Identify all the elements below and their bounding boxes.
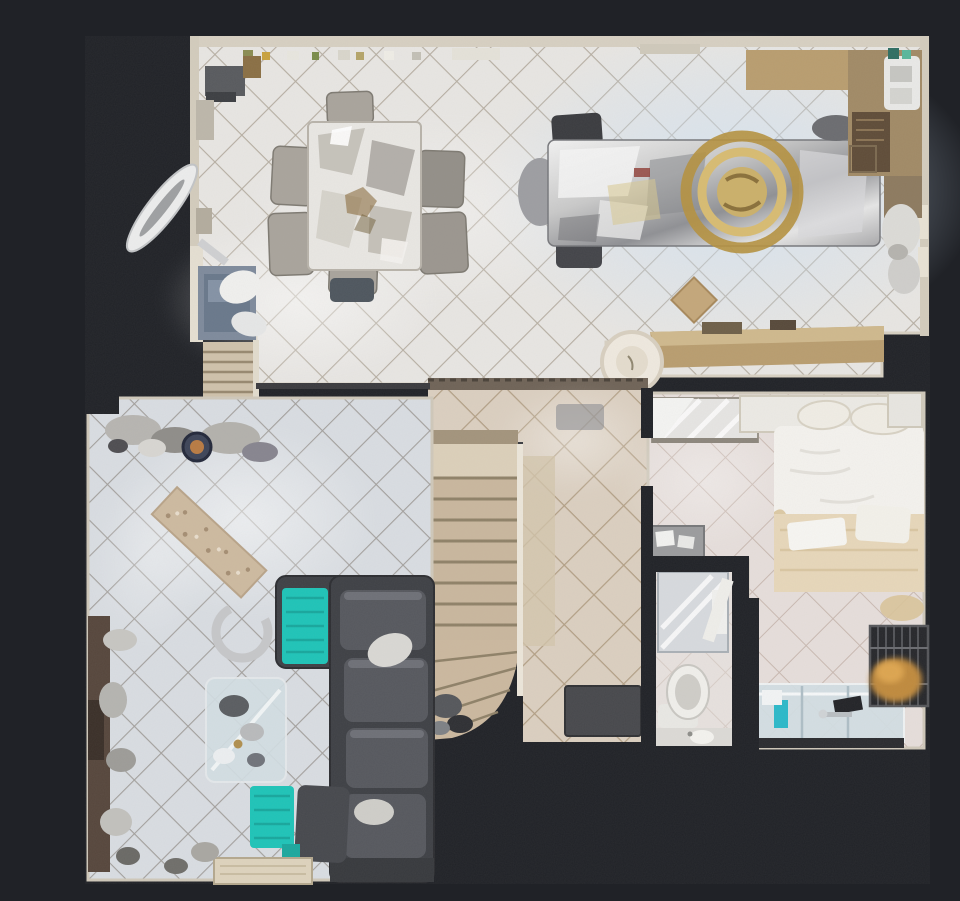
scan-grain-overlay	[85, 36, 930, 884]
floorplan-stage	[0, 0, 960, 901]
floorplan-canvas[interactable]	[0, 0, 960, 901]
